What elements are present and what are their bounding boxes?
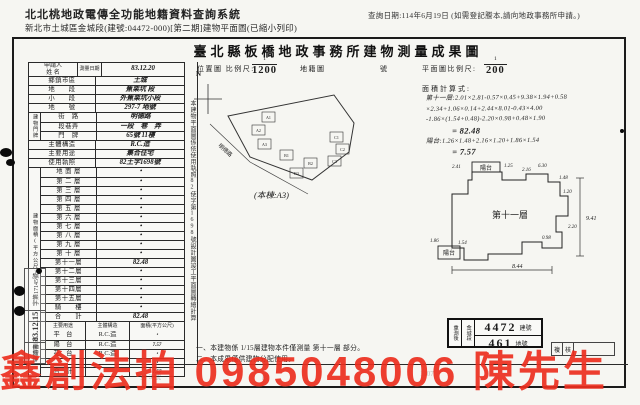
svg-text:A3: A3 bbox=[262, 142, 267, 147]
floor-row: 第 九 層 ・ bbox=[41, 240, 184, 249]
scan-blob bbox=[0, 148, 12, 157]
query-date: 查詢日期:114年6月19日 (如需登記謄本,請向地政事務所申請。) bbox=[368, 10, 580, 21]
scale-numerator: 1 bbox=[484, 57, 507, 65]
floor-row: 第十一層 82.48 bbox=[41, 258, 184, 267]
location-row-value: 297-7 地號 bbox=[95, 104, 184, 112]
road-label: 明德路 bbox=[217, 142, 235, 159]
building-row: 使用執照 82土字1698號 bbox=[29, 158, 184, 167]
building-row-label: 主要用途 bbox=[29, 150, 95, 158]
address-row-value: 65號 11樓 bbox=[96, 132, 184, 140]
location-row-label: 小 段 bbox=[29, 95, 95, 103]
scan-blob bbox=[36, 268, 42, 274]
address-row: 段巷弄 一段 巷 弄 bbox=[41, 122, 184, 131]
location-row-value: 蕉栗坑 段 bbox=[95, 86, 184, 94]
floor-plan: 陽台 陽台 第十一層 9.41 8.44 2.41 1.25 2.16 6.30… bbox=[428, 158, 632, 284]
annex-header-structure: 主體構造 bbox=[85, 322, 129, 331]
floor-label: 地 面 層 bbox=[41, 168, 96, 177]
svg-text:A2: A2 bbox=[256, 128, 261, 133]
svg-text:C1: C1 bbox=[334, 135, 339, 140]
svg-text:1.54: 1.54 bbox=[458, 241, 467, 246]
building-row: 主要用途 集合住宅 bbox=[29, 149, 184, 158]
floor-row: 第 十 層 ・ bbox=[41, 249, 184, 258]
svg-text:1.86: 1.86 bbox=[430, 239, 439, 244]
survey-date-stamp: 83.12.20 bbox=[101, 63, 184, 76]
floor-label: 第 九 層 bbox=[41, 241, 96, 249]
floor-row: 第 二 層 ・ bbox=[41, 177, 184, 186]
building-row-label: 使用執照 bbox=[29, 159, 95, 167]
annex-header-area: 面積(平方公尺) bbox=[129, 322, 184, 331]
scan-blob bbox=[620, 129, 624, 133]
floor-label: 騎 樓 bbox=[41, 304, 96, 312]
floor-label: 第 四 層 bbox=[41, 196, 96, 204]
building-number: 4472 bbox=[484, 320, 516, 335]
scan-blob bbox=[6, 159, 15, 166]
north-label: N bbox=[196, 70, 201, 78]
floor-label: 第 十 層 bbox=[41, 250, 96, 258]
floor-area-value: ・ bbox=[96, 268, 184, 276]
floor-label: 第 八 層 bbox=[41, 232, 96, 240]
svg-text:B2: B2 bbox=[308, 161, 313, 166]
floor-area-value: ・ bbox=[96, 241, 184, 249]
scale-denominator: 200 bbox=[484, 65, 507, 77]
address-side-label: 建物門牌 bbox=[29, 113, 41, 140]
calculation-line: = 7.57 bbox=[426, 145, 636, 158]
address-row-label: 街 路 bbox=[41, 113, 96, 122]
address-row-value: 明德路 bbox=[96, 113, 184, 122]
floor-label: 第 七 層 bbox=[41, 223, 96, 231]
location-row-label: 鄉鎮市區 bbox=[29, 77, 95, 85]
floor-label: 第十三層 bbox=[41, 277, 96, 285]
annex-row: 平 台 R.C.造 ・ bbox=[41, 331, 184, 340]
svg-text:2.41: 2.41 bbox=[452, 165, 461, 170]
applicant-name-label: 姓 名 bbox=[46, 70, 60, 76]
dimension-right-value: 9.41 bbox=[586, 215, 597, 222]
floor-area-value: ・ bbox=[96, 178, 184, 186]
floor-area-value: ・ bbox=[96, 205, 184, 213]
building-row-value: 集合住宅 bbox=[95, 150, 184, 158]
annex-header-use: 主要用途 bbox=[41, 322, 85, 331]
floor-area-value: 82.48 bbox=[96, 259, 184, 267]
floor-label: 第 五 層 bbox=[41, 205, 96, 213]
floor-label: 第 六 層 bbox=[41, 214, 96, 222]
property-table: 申請人 姓 名 測量日期 83.12.20 鄉鎮市區 土城 地 段 蕉栗坑 段 bbox=[28, 62, 185, 377]
floor-row: 第 三 層 ・ bbox=[41, 186, 184, 195]
floor-label: 第 二 層 bbox=[41, 178, 96, 186]
annex-header-row: 主要用途 主體構造 面積(平方公尺) bbox=[41, 322, 184, 331]
floor-area-value: ・ bbox=[96, 250, 184, 258]
floor-area-value: ・ bbox=[96, 277, 184, 285]
floor-row: 第 五 層 ・ bbox=[41, 204, 184, 213]
location-row: 地 號 297-7 地號 bbox=[29, 103, 184, 112]
sheet-number-label: 號 bbox=[380, 64, 389, 74]
floor-area-value: ・ bbox=[96, 223, 184, 231]
address-block: 建物門牌 街 路 明德路 段巷弄 一段 巷 弄 bbox=[29, 112, 184, 140]
building-number-unit: 建號 bbox=[519, 323, 531, 332]
location-map-scale-label: 位置圖 比例尺: bbox=[197, 64, 255, 74]
floor-plan-scale-fraction: 1 200 bbox=[484, 57, 507, 76]
location-row: 小 段 外蕉栗坑小段 bbox=[29, 94, 184, 103]
auction-watermark: 鑫創法拍 0985048006 陳先生 bbox=[0, 351, 640, 393]
svg-text:2.20: 2.20 bbox=[568, 225, 577, 230]
system-title: 北北桃地政電傳全功能地籍資料查詢系統 bbox=[25, 6, 241, 22]
floor-row: 第 七 層 ・ bbox=[41, 222, 184, 231]
address-row: 門 牌 65號 11樓 bbox=[41, 131, 184, 140]
floor-label: 合 計 bbox=[41, 313, 96, 321]
svg-text:2.16: 2.16 bbox=[522, 168, 531, 173]
location-map: 明德路 A1 A2 A3 B1 B2 B3 C1 C2 C3 (本棟:A3) bbox=[192, 90, 430, 208]
floor-area-value: 82.48 bbox=[96, 313, 184, 321]
floor-area-value: ・ bbox=[96, 286, 184, 294]
location-row: 地 段 蕉栗坑 段 bbox=[29, 85, 184, 94]
svg-text:B3: B3 bbox=[294, 171, 299, 176]
survey-date-label: 測量日期 bbox=[77, 63, 101, 76]
area-calculation-block: 第十一層:2.01×2.81-0.57×0.45+9.38×1.94+0.58 … bbox=[426, 92, 637, 158]
location-map-scale-fraction: 1 1200 bbox=[252, 57, 277, 76]
floor-area-value: ・ bbox=[96, 304, 184, 312]
floor-area-value: ・ bbox=[96, 168, 184, 177]
floor-row: 第十五層 ・ bbox=[41, 294, 184, 303]
balcony-top-label: 陽台 bbox=[480, 164, 492, 172]
floor-plan-scale-label: 平面圖比例尺: bbox=[422, 64, 476, 74]
location-row-value: 外蕉栗坑小段 bbox=[95, 95, 184, 103]
floor-row: 第 六 層 ・ bbox=[41, 213, 184, 222]
floor-row: 第 四 層 ・ bbox=[41, 195, 184, 204]
scan-blob bbox=[14, 306, 25, 316]
building-row-value: 82土字1698號 bbox=[95, 159, 184, 167]
location-row: 鄉鎮市區 土城 bbox=[29, 76, 184, 85]
balcony-bottom-label: 陽台 bbox=[443, 249, 455, 257]
floor-area-value: ・ bbox=[96, 232, 184, 240]
svg-text:C3: C3 bbox=[332, 159, 337, 164]
svg-text:A1: A1 bbox=[266, 115, 271, 120]
building-rows: 主體構造 R.C.造 主要用途 集合住宅 使用執照 82土字1698號 bbox=[29, 140, 184, 167]
floor-row: 第十四層 ・ bbox=[41, 285, 184, 294]
svg-text:1.20: 1.20 bbox=[563, 190, 572, 195]
scan-blob bbox=[14, 286, 25, 296]
floor-label: 第十二層 bbox=[41, 268, 96, 276]
floor-row: 第十三層 ・ bbox=[41, 276, 184, 285]
floor-area-value: ・ bbox=[96, 295, 184, 303]
svg-text:B1: B1 bbox=[284, 153, 289, 158]
svg-text:1.48: 1.48 bbox=[559, 176, 568, 181]
address-row: 街 路 明德路 bbox=[41, 113, 184, 122]
floor-label: 第十五層 bbox=[41, 295, 96, 303]
location-row-value: 土城 bbox=[95, 77, 184, 85]
address-row-label: 段巷弄 bbox=[41, 123, 96, 131]
document-subtitle: 新北市土城區金城段(建號:04472-000)[第二期]建物平面圖(已縮小列印) bbox=[25, 22, 297, 34]
annex-structure: R.C.造 bbox=[85, 331, 129, 340]
floor-row: 地 面 層 ・ bbox=[41, 168, 184, 177]
cadastral-map-label: 地籍圖 bbox=[300, 64, 326, 74]
svg-text:C2: C2 bbox=[340, 147, 345, 152]
annex-area: ・ bbox=[129, 331, 184, 340]
receipt-number: 字第17145號 bbox=[25, 269, 45, 311]
floor-row: 合 計 82.48 bbox=[41, 312, 184, 321]
scale-denominator: 1200 bbox=[252, 65, 277, 77]
floor-row: 騎 樓 ・ bbox=[41, 303, 184, 312]
dimension-bottom-value: 8.44 bbox=[512, 263, 523, 270]
map-caption: (本棟:A3) bbox=[254, 190, 289, 200]
floor-label: 第十一層 bbox=[41, 259, 96, 267]
building-row-value: R.C.造 bbox=[95, 141, 184, 149]
building-footprint-labels: A1 A2 A3 B1 B2 B3 C1 C2 C3 bbox=[256, 115, 345, 176]
svg-text:6.30: 6.30 bbox=[538, 164, 547, 169]
floor-label: 第十四層 bbox=[41, 286, 96, 294]
location-row-label: 地 號 bbox=[29, 104, 95, 112]
applicant-name-cell: 申請人 姓 名 bbox=[29, 63, 77, 76]
building-row: 主體構造 R.C.造 bbox=[29, 140, 184, 149]
room-label: 第十一層 bbox=[492, 209, 528, 220]
address-row-value: 一段 巷 弄 bbox=[96, 123, 184, 131]
floor-area-block: 建物面積(平方公尺) 地 面 層 ・ 第 二 層 ・ bbox=[29, 167, 184, 321]
building-number-row: 4472 建號 bbox=[475, 320, 541, 335]
floor-area-value: ・ bbox=[96, 196, 184, 204]
scale-numerator: 1 bbox=[252, 57, 277, 65]
location-rows: 鄉鎮市區 土城 地 段 蕉栗坑 段 小 段 外蕉栗坑小段 地 號 297-7 地… bbox=[29, 76, 184, 112]
svg-text:0.98: 0.98 bbox=[542, 236, 551, 241]
scanned-survey-document: 北北桃地政電傳全功能地籍資料查詢系統 查詢日期:114年6月19日 (如需登記謄… bbox=[0, 0, 640, 405]
floor-area-value: ・ bbox=[96, 214, 184, 222]
address-row-label: 門 牌 bbox=[41, 132, 96, 140]
location-row-label: 地 段 bbox=[29, 86, 95, 94]
floor-area-value: ・ bbox=[96, 187, 184, 195]
receipt-date: 83.12.15 bbox=[25, 311, 45, 343]
building-row-label: 主體構造 bbox=[29, 141, 95, 149]
floor-label: 第 三 層 bbox=[41, 187, 96, 195]
annex-use: 平 台 bbox=[41, 331, 85, 340]
svg-text:1.25: 1.25 bbox=[504, 164, 513, 169]
form-title: 臺北縣板橋地政事務所建物測量成果圖 bbox=[12, 41, 628, 60]
applicant-label: 申請人 bbox=[44, 63, 62, 69]
floor-row: 第 八 層 ・ bbox=[41, 231, 184, 240]
applicant-row: 申請人 姓 名 測量日期 83.12.20 bbox=[29, 63, 184, 76]
floor-row: 第十二層 ・ bbox=[41, 267, 184, 276]
